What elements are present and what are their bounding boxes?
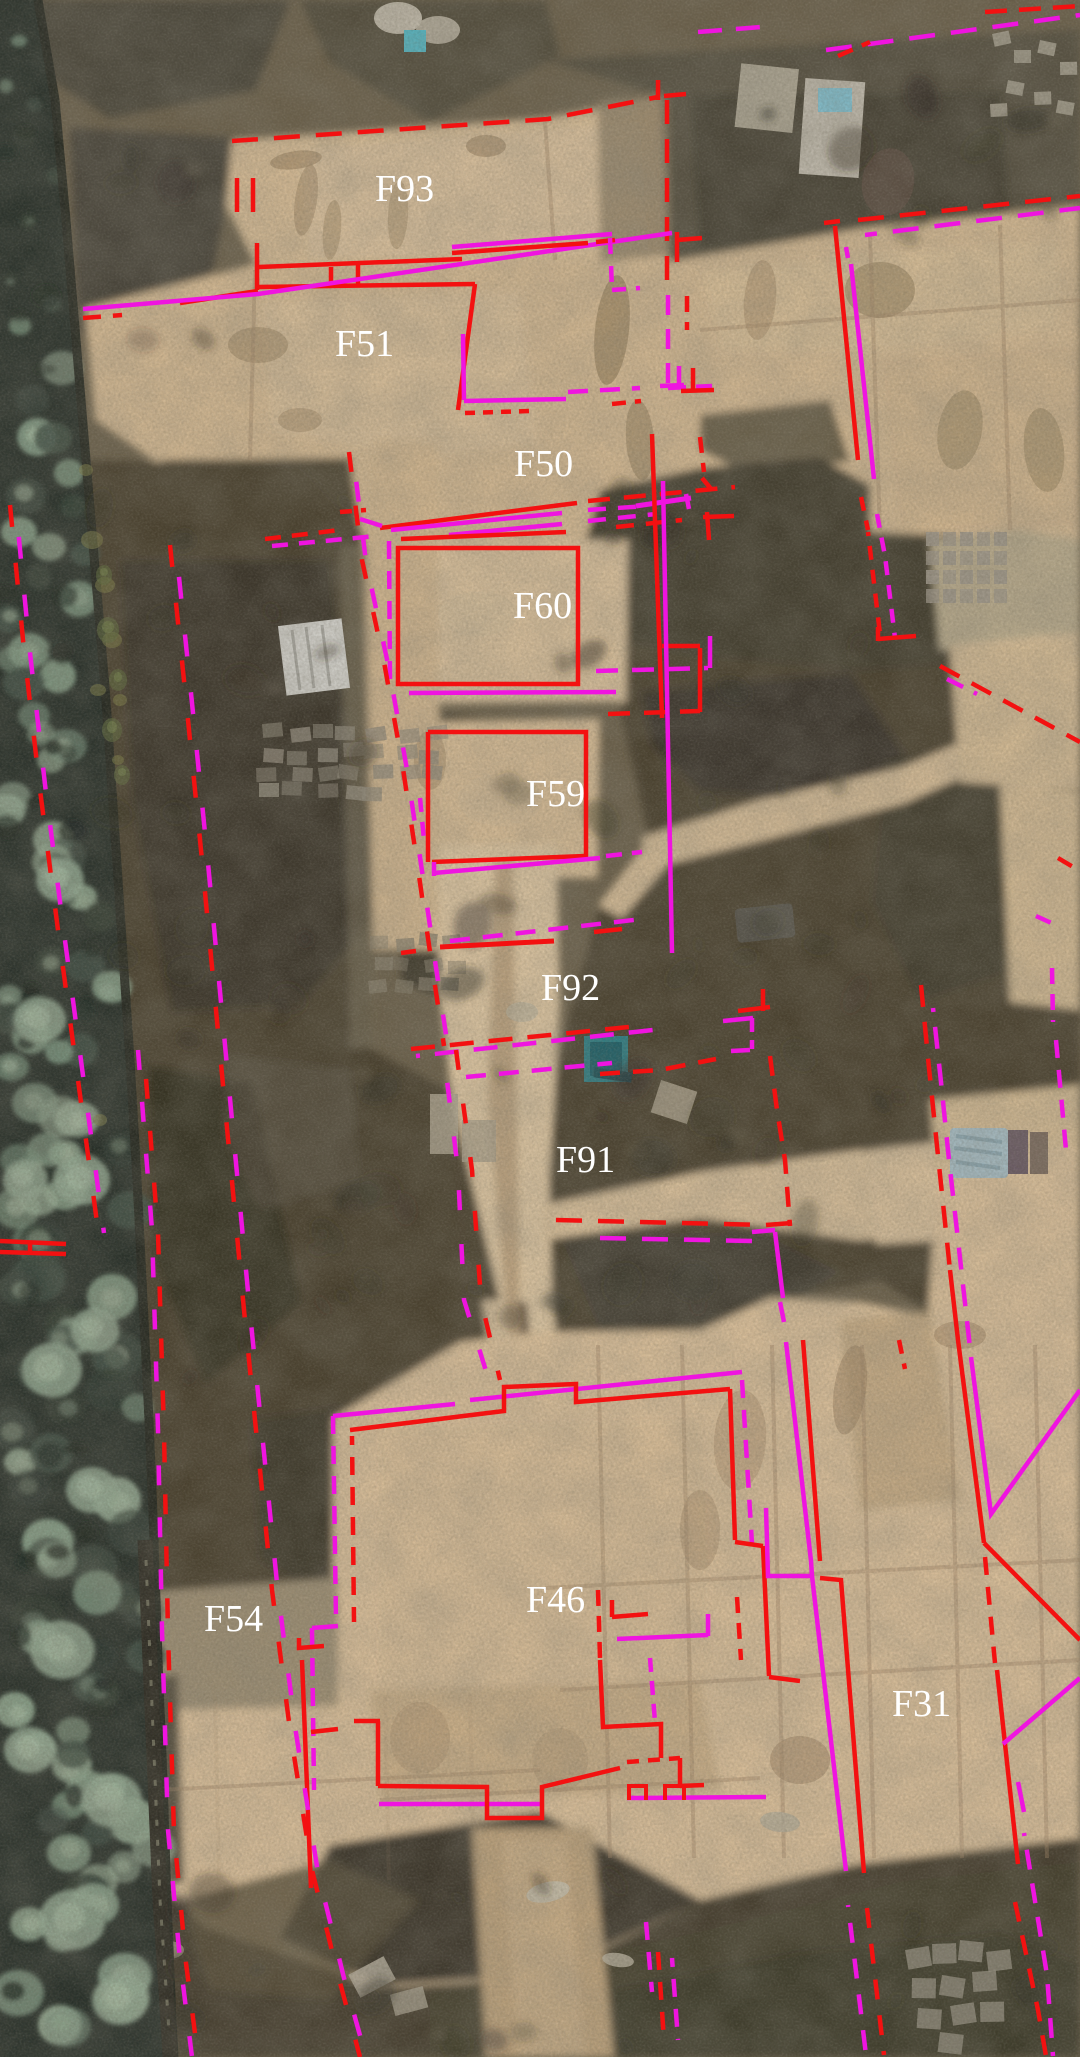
- svg-text:F46: F46: [526, 1579, 585, 1621]
- svg-text:F54: F54: [204, 1598, 263, 1640]
- svg-text:F51: F51: [335, 323, 394, 365]
- svg-text:F59: F59: [526, 773, 585, 815]
- svg-text:F60: F60: [513, 585, 572, 627]
- svg-text:F50: F50: [514, 443, 573, 485]
- svg-text:F93: F93: [375, 168, 434, 210]
- svg-text:F31: F31: [892, 1683, 951, 1725]
- svg-text:F92: F92: [541, 967, 600, 1009]
- svg-text:F91: F91: [556, 1139, 615, 1181]
